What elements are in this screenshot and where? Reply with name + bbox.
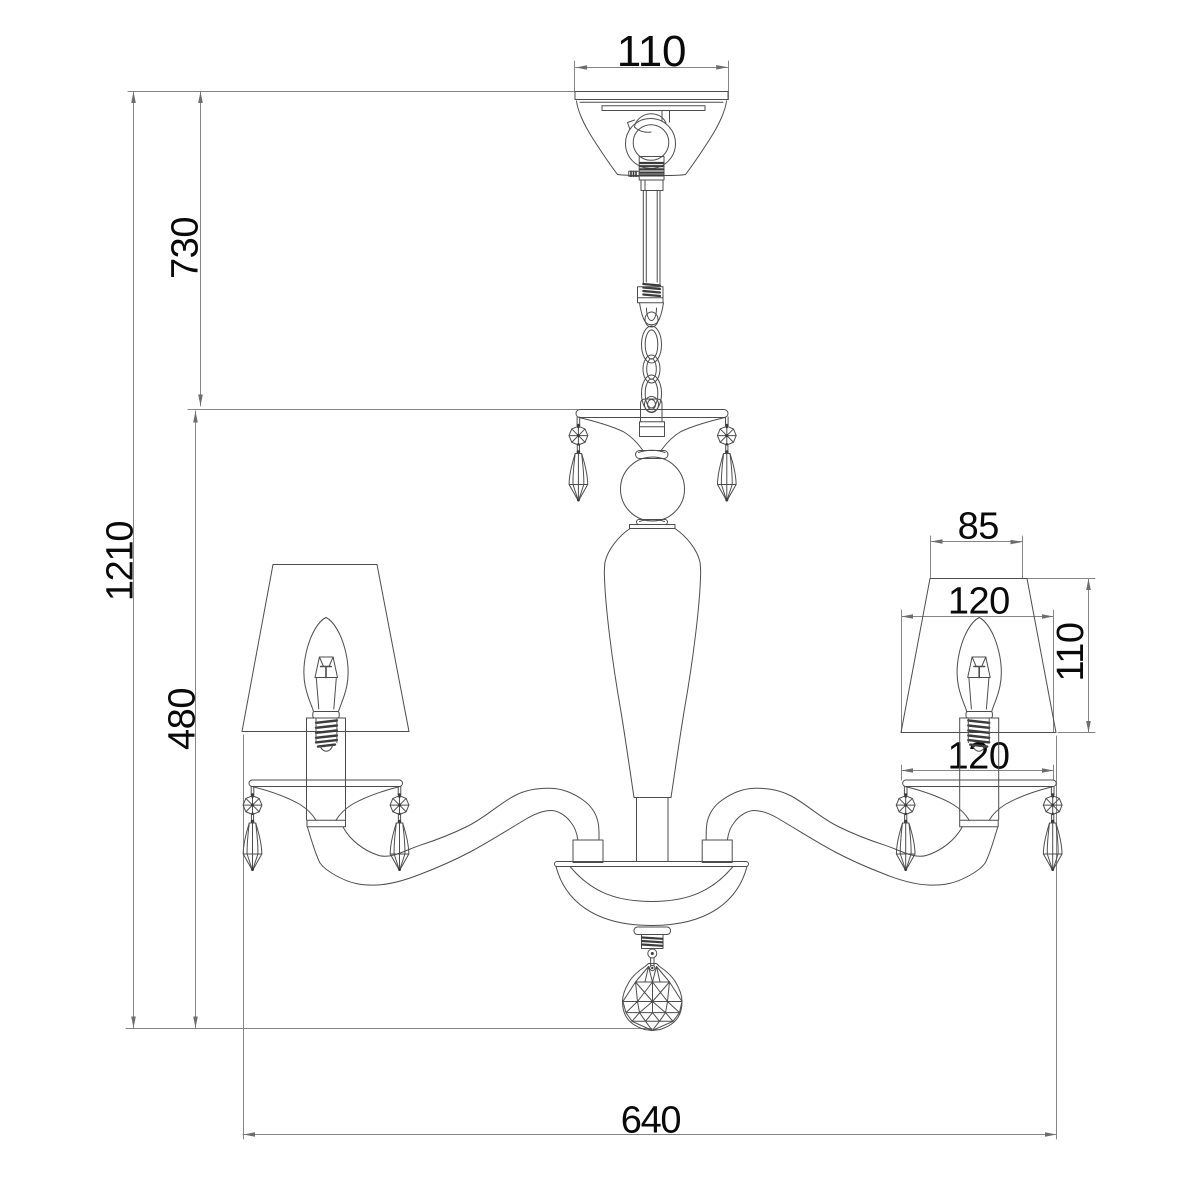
svg-text:640: 640	[621, 1100, 681, 1142]
svg-text:1210: 1210	[100, 522, 142, 602]
svg-text:110: 110	[617, 27, 687, 76]
svg-text:480: 480	[162, 688, 204, 750]
svg-text:110: 110	[1050, 622, 1092, 681]
svg-text:120: 120	[948, 581, 1010, 623]
svg-text:85: 85	[958, 506, 999, 548]
svg-text:730: 730	[165, 217, 207, 279]
